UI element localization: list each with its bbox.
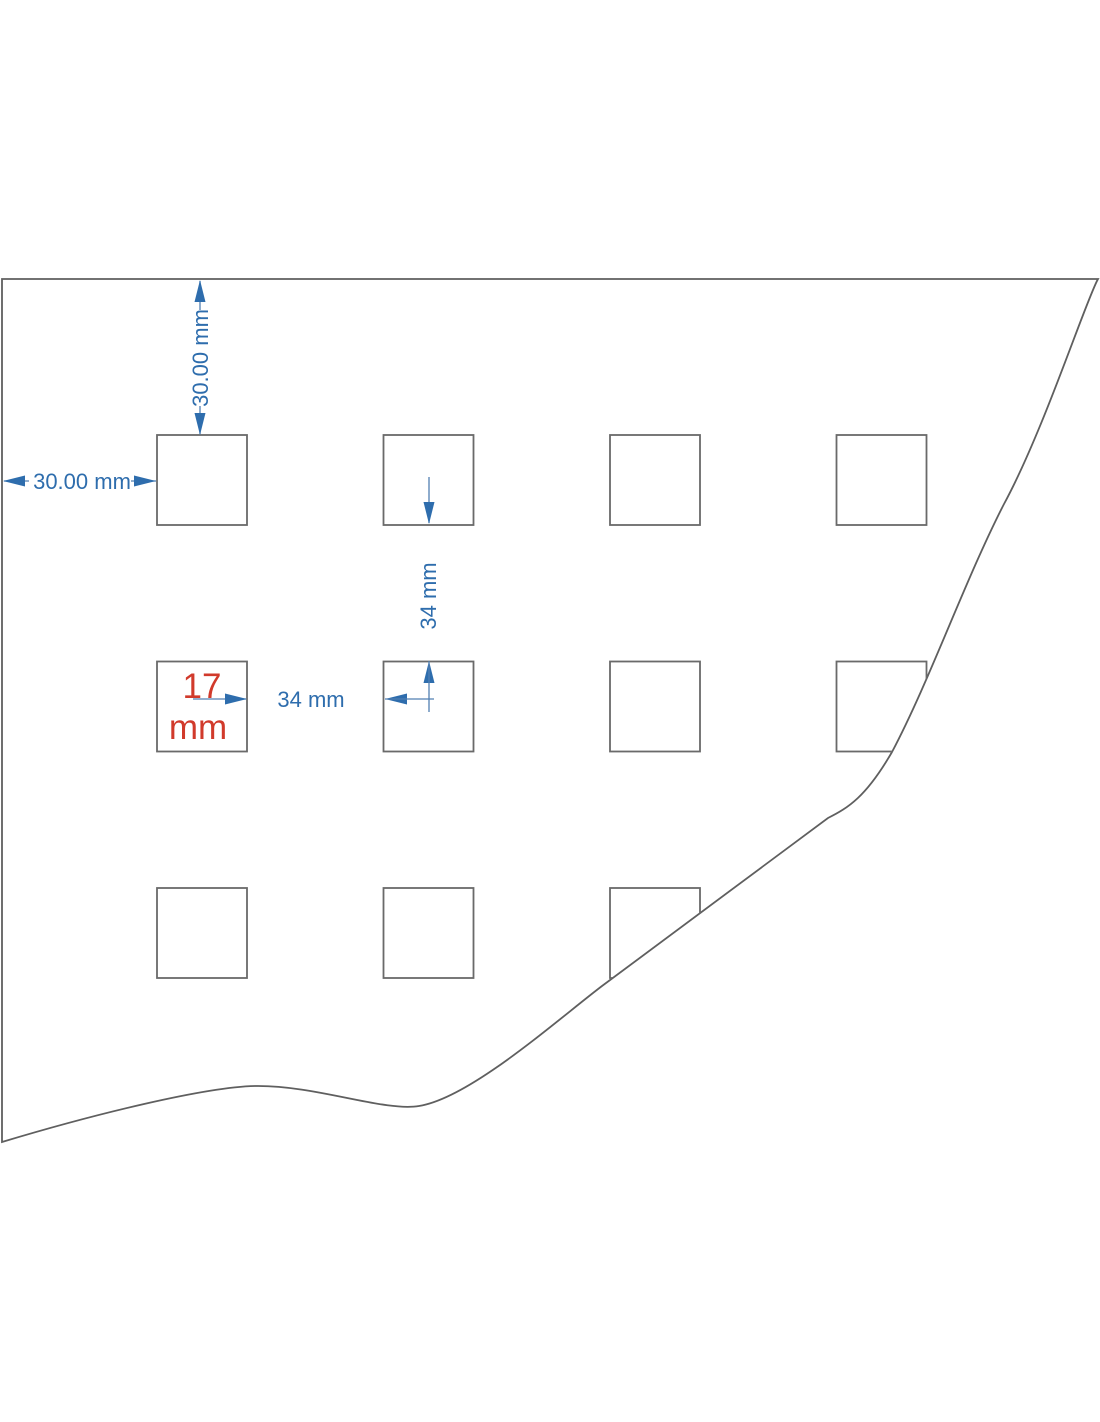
hole-size-label: 17 mm xyxy=(169,667,227,747)
dimension-top-margin: 30.00 mm xyxy=(188,280,213,435)
horizontal-spacing-label: 34 mm xyxy=(277,687,344,712)
arrow-right-icon xyxy=(134,476,156,487)
hole-square xyxy=(837,662,927,752)
drawing-canvas: 30.00 mm 30.00 mm 34 mm 34 mm xyxy=(0,0,1100,1422)
arrow-left-icon xyxy=(3,476,25,487)
hole-square xyxy=(610,888,700,978)
dimension-left-margin: 30.00 mm xyxy=(3,469,156,494)
hole-square xyxy=(837,435,927,525)
arrow-right-icon xyxy=(225,694,247,705)
hole-square xyxy=(610,662,700,752)
arrow-down-icon xyxy=(424,502,435,524)
top-margin-label: 30.00 mm xyxy=(188,309,213,407)
hole-square xyxy=(610,435,700,525)
hole-square xyxy=(837,888,927,978)
dimension-horizontal-spacing: 34 mm xyxy=(193,687,434,712)
arrow-up-icon xyxy=(195,280,206,302)
hole-grid xyxy=(157,435,927,978)
dimension-vertical-spacing: 34 mm xyxy=(416,477,441,712)
arrow-down-icon xyxy=(195,413,206,435)
hole-square xyxy=(384,888,474,978)
hole-size-unit: mm xyxy=(169,708,227,747)
vertical-spacing-label: 34 mm xyxy=(416,562,441,629)
sheet-outline xyxy=(2,279,1098,1142)
hole-size-value: 17 xyxy=(183,667,222,706)
hole-square xyxy=(157,888,247,978)
perforated-sheet-drawing: 30.00 mm 30.00 mm 34 mm 34 mm xyxy=(0,0,1100,1422)
left-margin-label: 30.00 mm xyxy=(33,469,131,494)
hole-square xyxy=(157,435,247,525)
